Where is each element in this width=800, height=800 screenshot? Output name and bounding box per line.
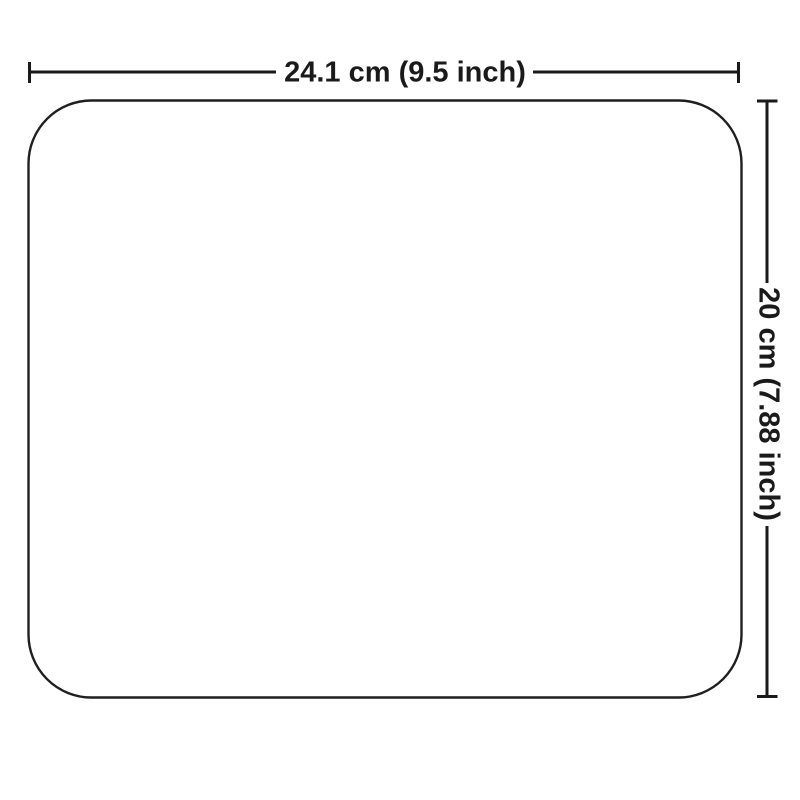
svg-text:20 cm (7.88 inch): 20 cm (7.88 inch) (753, 287, 785, 521)
svg-text:24.1 cm (9.5 inch): 24.1 cm (9.5 inch) (284, 57, 526, 89)
